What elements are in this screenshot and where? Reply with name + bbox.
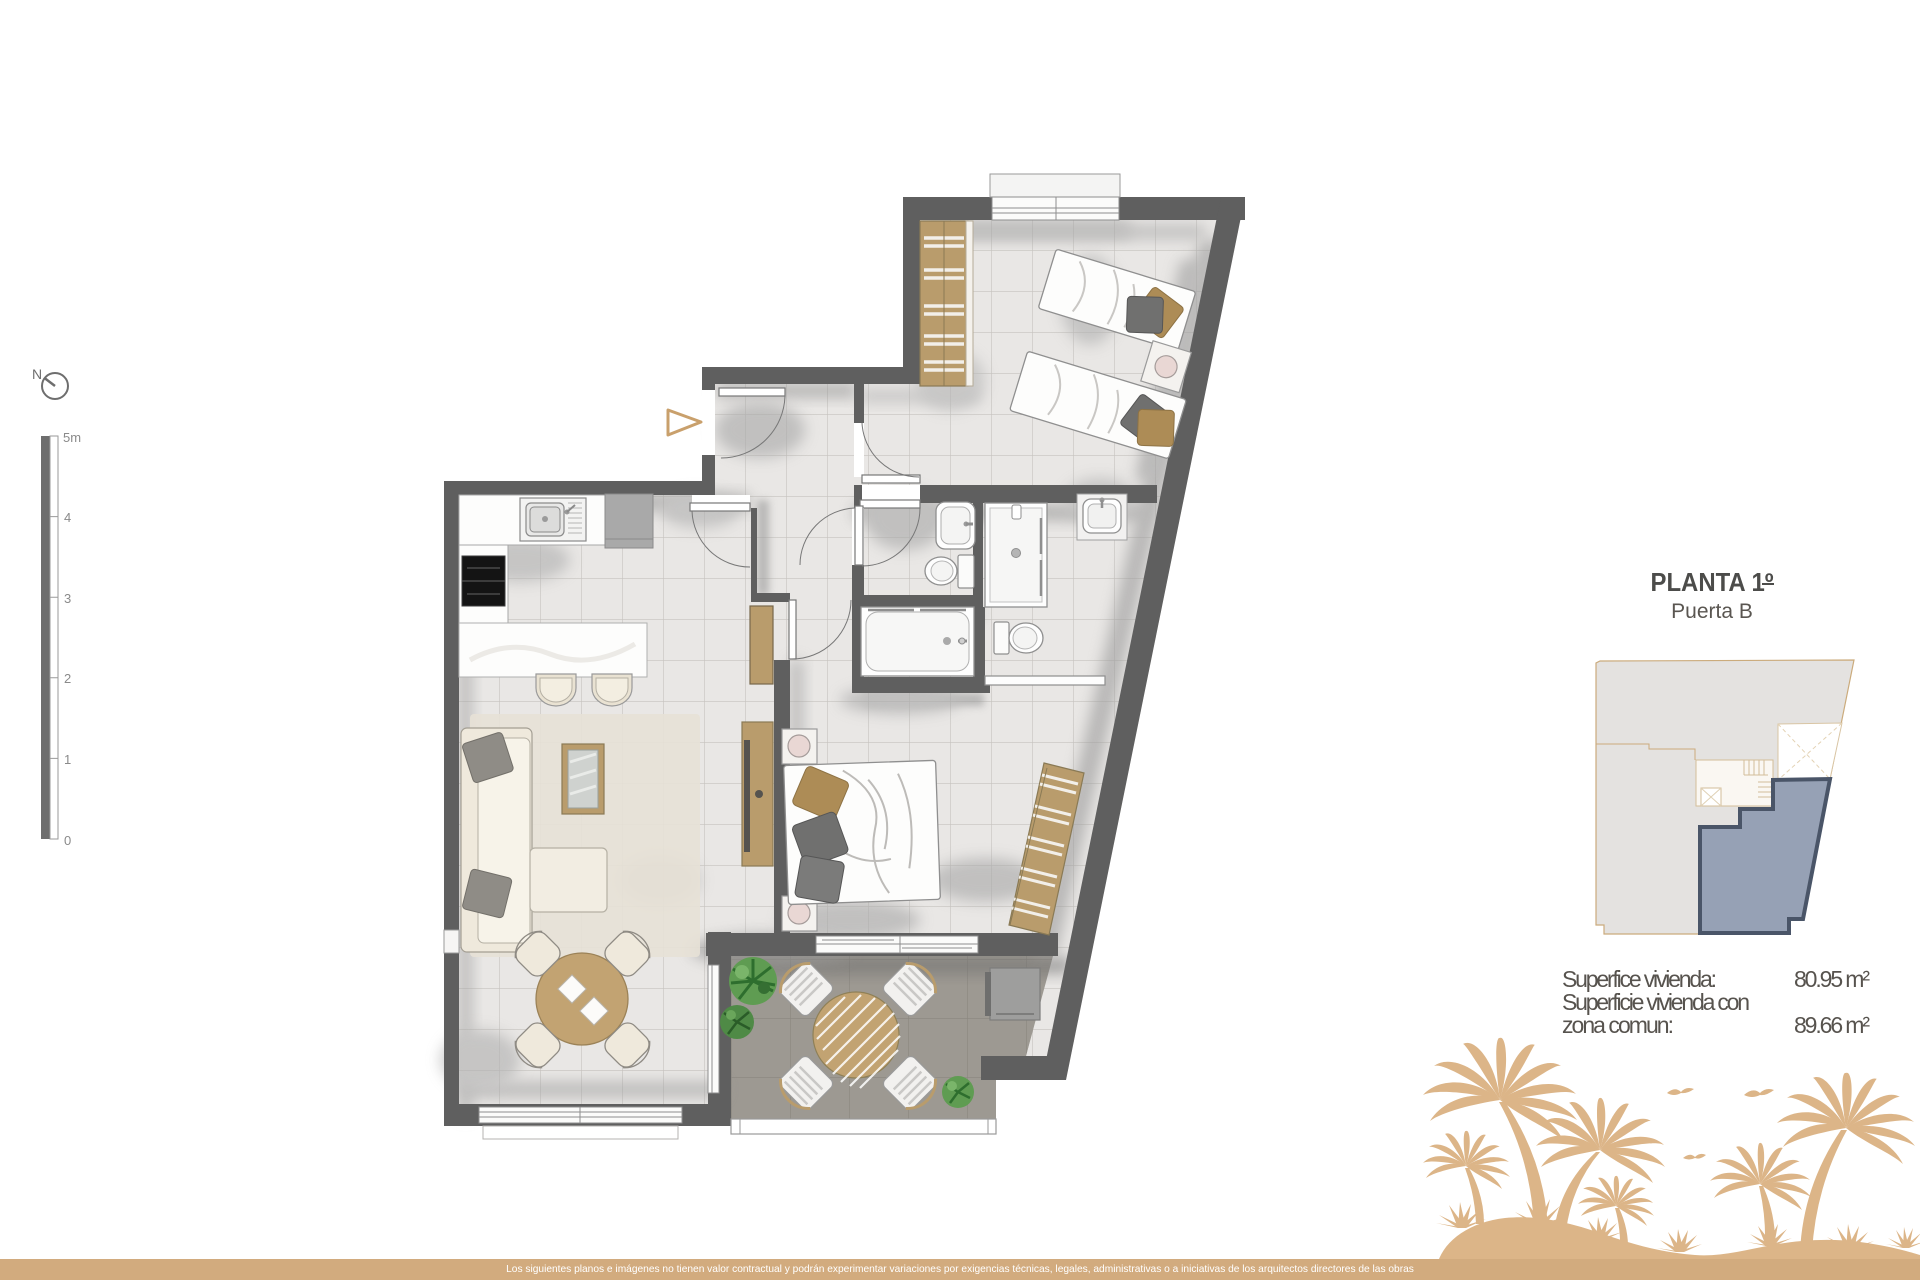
- svg-text:89.66 m²: 89.66 m²: [1794, 1012, 1870, 1038]
- svg-text:80.95 m²: 80.95 m²: [1794, 966, 1870, 992]
- svg-text:zona comun:: zona comun:: [1562, 1012, 1674, 1038]
- svg-text:5m: 5m: [63, 430, 81, 445]
- svg-text:2: 2: [64, 671, 71, 686]
- svg-text:3: 3: [64, 591, 71, 606]
- svg-text:Puerta B: Puerta B: [1671, 600, 1753, 623]
- svg-text:0: 0: [64, 833, 71, 848]
- svg-text:4: 4: [64, 510, 71, 525]
- svg-text:Los siguientes planos e imágen: Los siguientes planos e imágenes no tien…: [506, 1264, 1414, 1275]
- svg-text:PLANTA 1º: PLANTA 1º: [1651, 567, 1774, 597]
- svg-text:1: 1: [64, 752, 71, 767]
- svg-text:N: N: [32, 366, 42, 382]
